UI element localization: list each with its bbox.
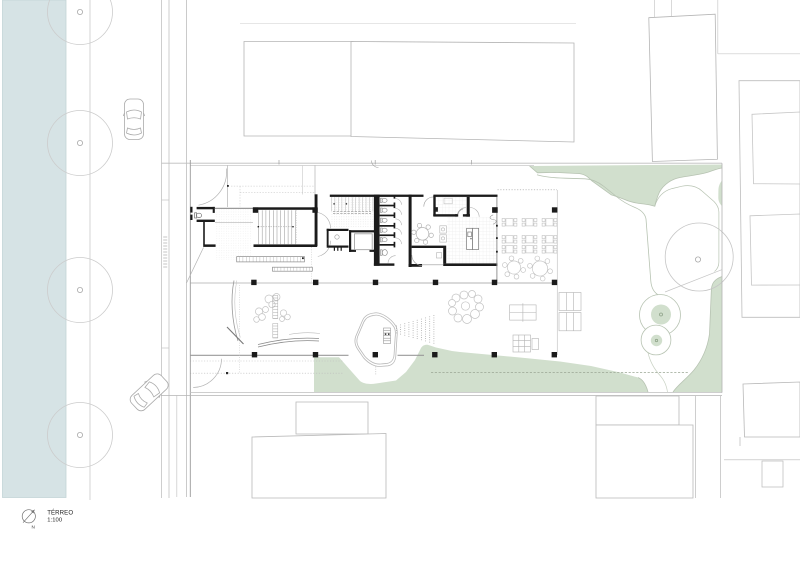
svg-text:N: N — [32, 525, 35, 530]
svg-text:1:100: 1:100 — [47, 517, 62, 523]
svg-text:TÉRREO: TÉRREO — [47, 509, 73, 516]
